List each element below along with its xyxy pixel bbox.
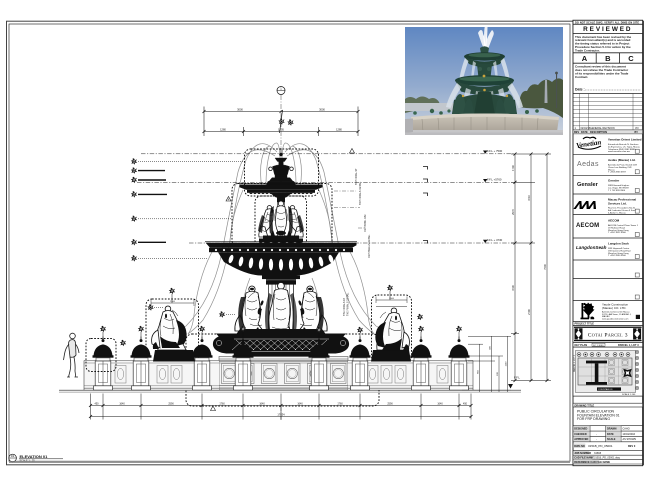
svg-text:DRAWING TITLE: DRAWING TITLE [575, 404, 595, 407]
svg-text:PARCEL 1 LOT 2: PARCEL 1 LOT 2 [573, 354, 576, 372]
svg-text:REFERENCE CAD FILE NAME: REFERENCE CAD FILE NAME [574, 461, 610, 464]
svg-text:AECOM: AECOM [576, 223, 599, 229]
svg-text:Trade Contractor.: Trade Contractor. [575, 48, 600, 52]
svg-text:REV: REV [574, 131, 579, 134]
svg-text:ELEVATION 01: ELEVATION 01 [20, 454, 49, 459]
svg-text:SC 1:1000: SC 1:1000 [593, 345, 604, 347]
svg-text:REV 0: REV 0 [628, 445, 636, 448]
svg-text:Date :: Date : [575, 88, 585, 92]
svg-text:TOP FINIALS DETAIL: TOP FINIALS DETAIL [359, 181, 362, 205]
svg-text:SCALE 1 : 25: SCALE 1 : 25 [20, 460, 36, 463]
svg-text:3151B: 3151B [594, 452, 602, 455]
svg-text:CAHO: CAHO [623, 428, 630, 431]
svg-text:F.F.L: F.F.L [514, 376, 520, 380]
svg-text:4-Andar C, Macau: 4-Andar C, Macau [608, 211, 627, 214]
svg-text:450: 450 [95, 402, 100, 405]
svg-text:7500: 7500 [543, 264, 547, 270]
svg-text:2590: 2590 [168, 402, 174, 405]
svg-text:T +852 3922 9000: T +852 3922 9000 [608, 232, 627, 234]
svg-text:DESIGNED: DESIGNED [574, 428, 587, 431]
svg-text:1640: 1640 [119, 402, 125, 405]
svg-text:Aedas (Macau) Ltd.: Aedas (Macau) Ltd. [608, 158, 636, 162]
svg-text:SCALE: SCALE [607, 438, 616, 441]
svg-text:C: C [628, 54, 634, 63]
svg-text:VO: VO [635, 127, 639, 130]
svg-text:T +852 2830 3500: T +852 2830 3500 [608, 255, 627, 257]
svg-text:F.F.L +5760: F.F.L +5760 [487, 178, 502, 182]
svg-text:Langdon Seah: Langdon Seah [608, 242, 629, 246]
svg-text:3000: 3000 [237, 108, 243, 112]
svg-text:BY: BY [635, 131, 639, 134]
svg-text:1760: 1760 [219, 402, 225, 405]
svg-text:FRP BOWL RIM: FRP BOWL RIM [364, 215, 367, 232]
svg-text:T 1 702 893 2800: T 1 702 893 2800 [608, 190, 626, 192]
svg-text:B: B [605, 54, 611, 63]
svg-text:2790: 2790 [527, 309, 531, 315]
svg-text:1740: 1740 [511, 165, 515, 171]
svg-text:1150: 1150 [506, 361, 508, 366]
svg-text:AS SHOWN: AS SHOWN [623, 438, 637, 441]
svg-text:1280: 1280 [336, 128, 342, 132]
svg-text:Contract.: Contract. [575, 75, 588, 79]
svg-text:AECOM: AECOM [608, 219, 620, 223]
svg-text:4710: 4710 [527, 195, 531, 201]
svg-text:1760: 1760 [337, 402, 343, 405]
svg-text:1640: 1640 [437, 402, 443, 405]
svg-text:CHECKED: CHECKED [574, 433, 587, 436]
svg-text:F.F.L + 4730: F.F.L + 4730 [487, 238, 503, 242]
svg-text:1500: 1500 [170, 301, 176, 303]
svg-text:FOR FRP DRAWING: FOR FRP DRAWING [577, 417, 610, 421]
svg-text:Venetian Orient Limited: Venetian Orient Limited [608, 138, 642, 142]
svg-text:DATE: DATE [607, 433, 614, 436]
svg-text:SCALE 1:100: SCALE 1:100 [622, 393, 636, 396]
svg-text:DWG NO: DWG NO [574, 445, 585, 448]
svg-text:DRAWN: DRAWN [607, 428, 617, 431]
svg-text:REVIEWED: REVIEWED [583, 26, 632, 33]
svg-text:F.F.L + 7500: F.F.L + 7500 [487, 149, 503, 153]
svg-text:KEY PLAN: KEY PLAN [575, 344, 588, 347]
svg-text:TOP FINIAL ST: TOP FINIAL ST [355, 168, 358, 185]
svg-text:LangdonSeah: LangdonSeah [576, 245, 607, 250]
svg-text:1500: 1500 [389, 298, 395, 300]
svg-text:1640: 1640 [297, 402, 303, 405]
svg-text:Aedas: Aedas [577, 161, 599, 168]
svg-text:DATE: DATE [581, 131, 588, 134]
svg-text:17434: 17434 [277, 412, 285, 416]
svg-text:1640: 1640 [259, 402, 265, 405]
svg-text:Services Ltd.: Services Ltd. [608, 201, 627, 205]
svg-text:Gensler: Gensler [608, 179, 620, 183]
svg-text:4730: 4730 [511, 285, 515, 291]
svg-text:www.venetian.com.mo: www.venetian.com.mo [608, 150, 631, 153]
svg-text:GENERAL REVISION: GENERAL REVISION [590, 127, 615, 130]
svg-text:A: A [582, 54, 588, 63]
svg-text:2970: 2970 [511, 209, 515, 215]
svg-text:10/04/2016: 10/04/2016 [623, 433, 636, 436]
svg-text:2590: 2590 [387, 402, 393, 405]
svg-text:CAD FILE NAME: CAD FILE NAME [574, 457, 594, 460]
svg-text:1205: 1205 [278, 128, 284, 132]
svg-text:(Macau) CO. LTD.: (Macau) CO. LTD. [602, 306, 626, 310]
svg-text:01: 01 [11, 454, 15, 458]
svg-text:T +853 2833 3937: T +853 2833 3937 [608, 172, 627, 174]
svg-text:DESCRIPTION: DESCRIPTION [590, 131, 607, 134]
svg-text:PARCEL 1, LOT 3: PARCEL 1, LOT 3 [618, 344, 639, 347]
svg-text:JOB NUMBER: JOB NUMBER [574, 452, 591, 455]
svg-text:450: 450 [463, 402, 468, 405]
svg-text:www.yaudeconstruction.com: www.yaudeconstruction.com [602, 318, 629, 321]
svg-text:FRP PANELS DETAIL: FRP PANELS DETAIL [368, 234, 371, 258]
svg-text:3000: 3000 [319, 108, 325, 112]
svg-text:3151B_PD_05001: 3151B_PD_05001 [588, 444, 613, 448]
svg-text:FOUNTAIN 01: FOUNTAIN 01 [599, 388, 614, 391]
svg-text:THE FINIALS DETAIL: THE FINIALS DETAIL [347, 292, 350, 316]
svg-text:APPROVED: APPROVED [574, 438, 588, 441]
svg-text:1280: 1280 [220, 128, 226, 132]
svg-text:Gensler: Gensler [577, 182, 599, 188]
svg-text:3151B_PD_05001.dwg: 3151B_PD_05001.dwg [594, 457, 620, 460]
